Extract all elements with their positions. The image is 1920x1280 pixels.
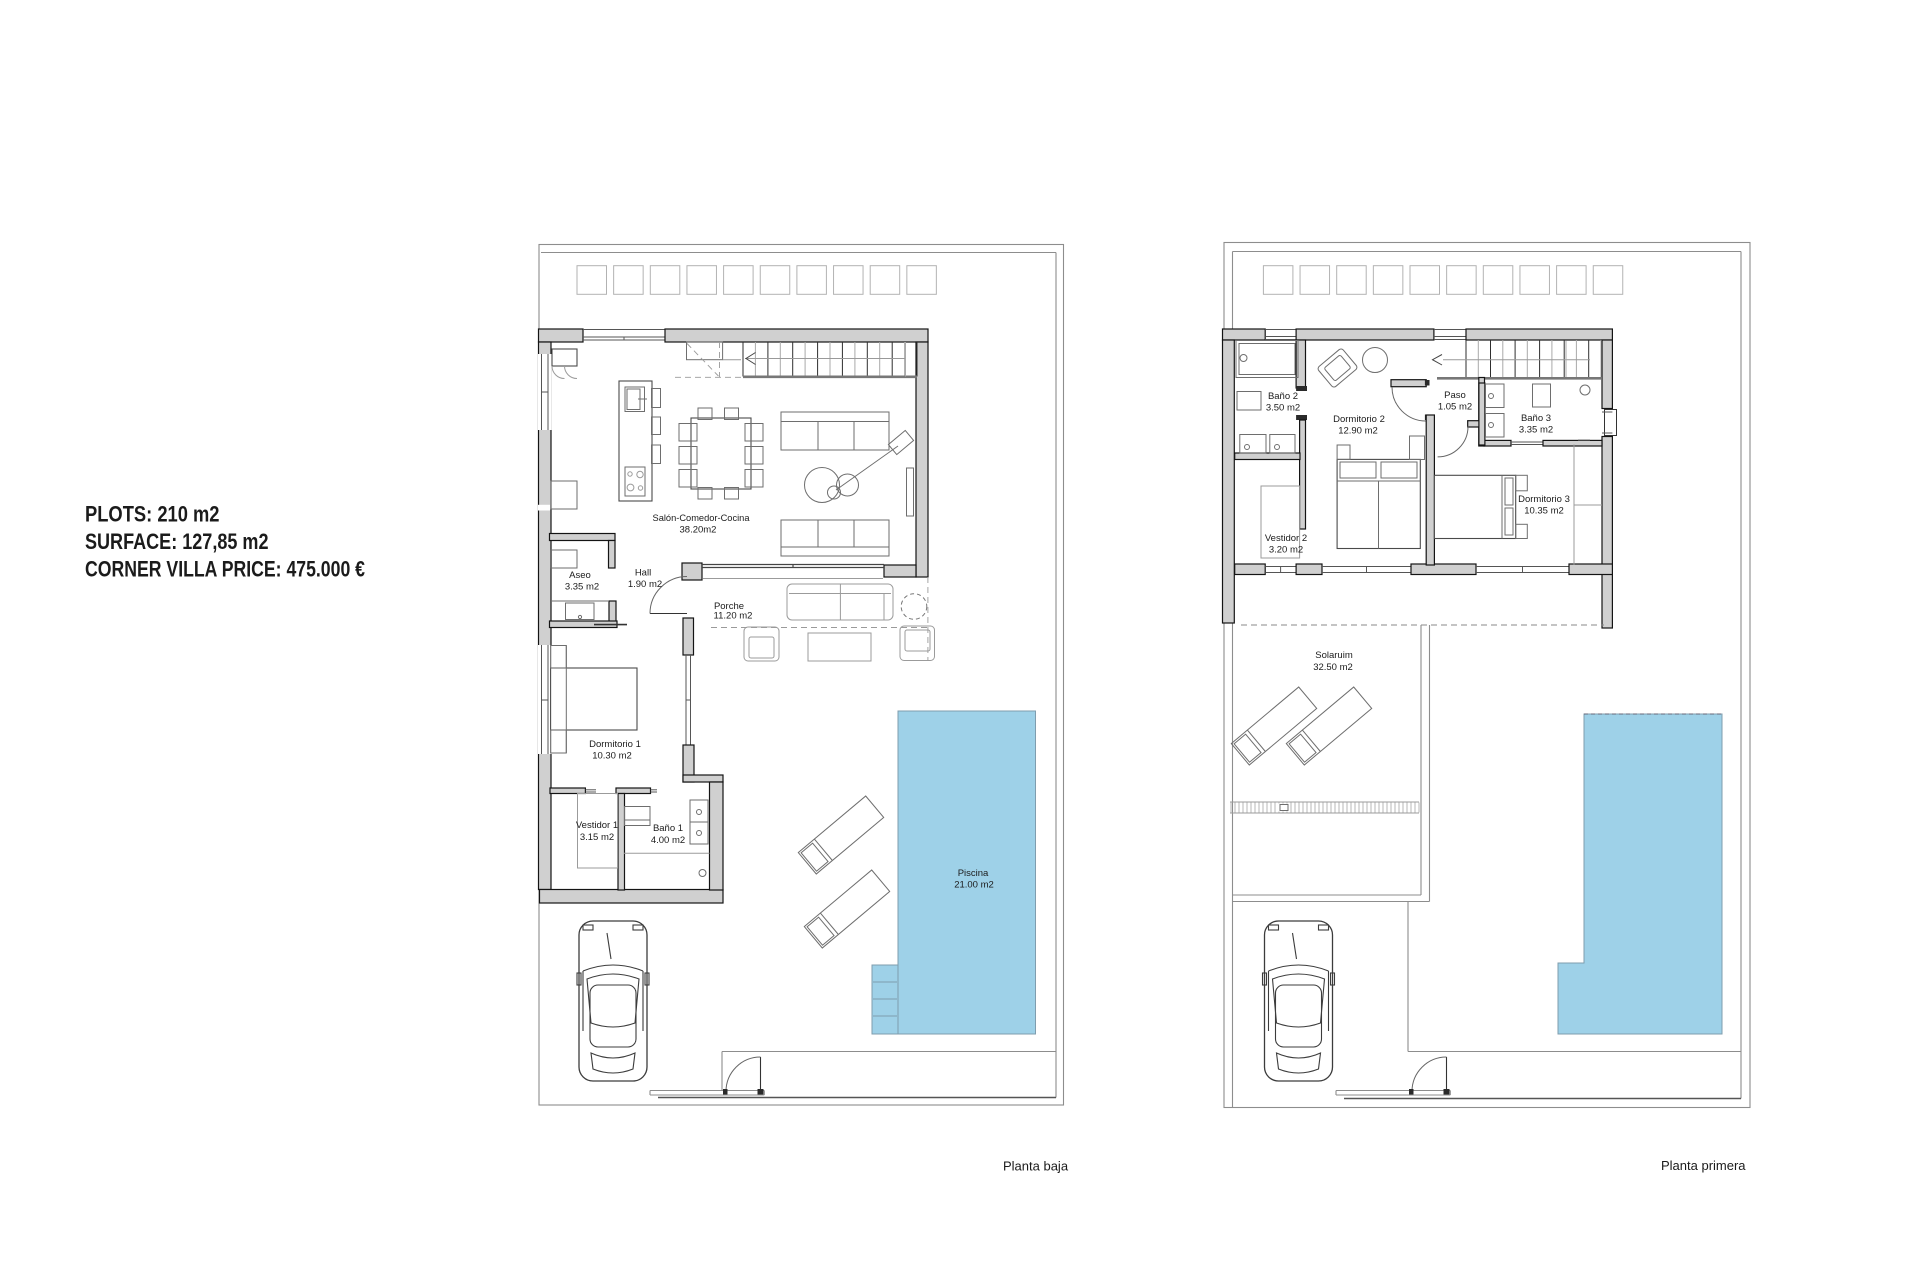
svg-text:10.30 m2: 10.30 m2 bbox=[592, 751, 632, 762]
svg-text:12.90 m2: 12.90 m2 bbox=[1338, 426, 1378, 437]
svg-text:Dormitorio 1: Dormitorio 1 bbox=[589, 739, 641, 750]
svg-text:3.15 m2: 3.15 m2 bbox=[580, 832, 614, 843]
svg-text:Hall: Hall bbox=[635, 568, 651, 579]
svg-text:1.05 m2: 1.05 m2 bbox=[1438, 402, 1472, 413]
svg-text:Dormitorio 2: Dormitorio 2 bbox=[1333, 414, 1385, 425]
svg-text:3.35 m2: 3.35 m2 bbox=[1519, 425, 1553, 436]
svg-text:Solaruim: Solaruim bbox=[1315, 650, 1353, 661]
svg-text:32.50 m2: 32.50 m2 bbox=[1313, 662, 1353, 673]
svg-text:Planta baja: Planta baja bbox=[1003, 1159, 1069, 1174]
svg-text:3.20 m2: 3.20 m2 bbox=[1269, 545, 1303, 556]
svg-text:Paso: Paso bbox=[1444, 390, 1466, 401]
svg-text:Planta primera: Planta primera bbox=[1661, 1158, 1746, 1173]
svg-text:38.20m2: 38.20m2 bbox=[680, 525, 717, 536]
svg-text:Baño 2: Baño 2 bbox=[1268, 391, 1298, 402]
svg-text:Vestidor 2: Vestidor 2 bbox=[1265, 533, 1307, 544]
svg-text:21.00 m2: 21.00 m2 bbox=[954, 880, 994, 891]
svg-text:Piscina: Piscina bbox=[958, 868, 989, 879]
svg-text:PLOTS: 210 m2: PLOTS: 210 m2 bbox=[85, 502, 220, 527]
svg-text:Salón-Comedor-Cocina: Salón-Comedor-Cocina bbox=[653, 513, 751, 524]
svg-text:11.20 m2: 11.20 m2 bbox=[714, 611, 753, 622]
svg-text:4.00 m2: 4.00 m2 bbox=[651, 835, 685, 846]
svg-text:Baño 3: Baño 3 bbox=[1521, 413, 1551, 424]
svg-text:SURFACE: 127,85 m2: SURFACE: 127,85 m2 bbox=[85, 529, 269, 554]
svg-text:CORNER VILLA PRICE: 475.000 €: CORNER VILLA PRICE: 475.000 € bbox=[85, 557, 365, 582]
svg-text:Vestidor 1: Vestidor 1 bbox=[576, 820, 618, 831]
svg-text:1.90 m2: 1.90 m2 bbox=[628, 579, 662, 590]
svg-text:3.50 m2: 3.50 m2 bbox=[1266, 403, 1300, 414]
svg-text:10.35 m2: 10.35 m2 bbox=[1524, 506, 1564, 517]
svg-text:Dormitorio 3: Dormitorio 3 bbox=[1518, 494, 1570, 505]
svg-text:Aseo: Aseo bbox=[569, 570, 591, 581]
svg-text:Baño 1: Baño 1 bbox=[653, 823, 683, 834]
svg-text:3.35 m2: 3.35 m2 bbox=[565, 582, 599, 593]
